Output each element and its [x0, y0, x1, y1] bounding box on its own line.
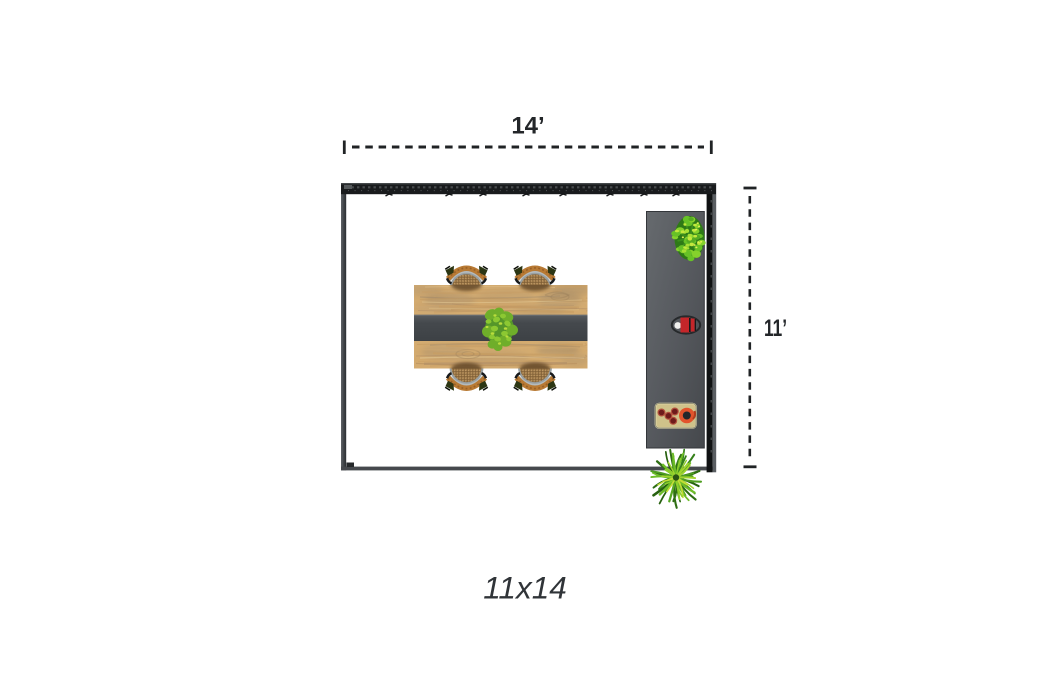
- svg-text:11’: 11’: [764, 315, 787, 342]
- svg-text:11x14: 11x14: [483, 570, 567, 606]
- svg-text:14’: 14’: [511, 113, 544, 140]
